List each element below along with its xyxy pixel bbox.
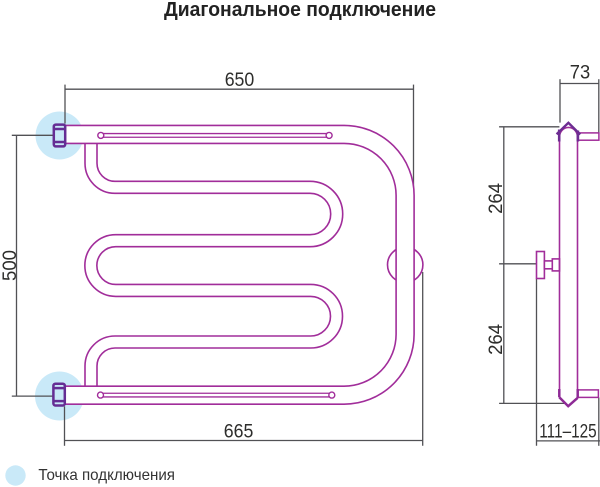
svg-text:665: 665	[224, 421, 254, 443]
svg-text:650: 650	[225, 69, 255, 91]
svg-text:111–125: 111–125	[539, 421, 597, 443]
svg-text:Точка подключения: Точка подключения	[38, 467, 175, 484]
svg-text:73: 73	[570, 62, 590, 84]
svg-text:Диагональное подключение: Диагональное подключение	[164, 0, 436, 21]
svg-text:264: 264	[485, 324, 507, 355]
svg-text:500: 500	[0, 250, 21, 281]
svg-text:264: 264	[485, 183, 507, 214]
